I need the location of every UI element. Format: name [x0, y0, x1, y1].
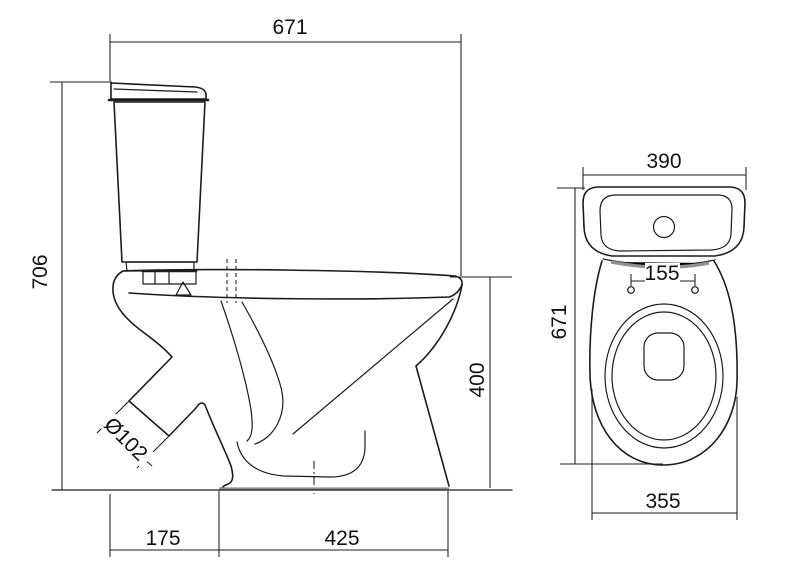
- dimension-value-706: 706: [29, 254, 52, 289]
- seat-ring-outer: [605, 304, 723, 448]
- seat-ring-inner: [612, 312, 716, 440]
- cistern-lid-inner-line: [114, 89, 197, 92]
- toilet-dimension-drawing: 671 706 400 Ø102 175 425: [0, 0, 789, 585]
- seat-bolt-centerlines: [227, 259, 236, 303]
- cistern-body-outline: [114, 102, 205, 262]
- hinge-hole-right: [692, 287, 699, 294]
- top-view: 390 155 671 355: [548, 150, 746, 520]
- dimension-value-155: 155: [644, 262, 679, 285]
- trapway-left-curve: [221, 301, 252, 441]
- seat-hinge-block: [143, 271, 196, 284]
- dimension-lines-671: [110, 34, 461, 276]
- dimension-value-400: 400: [466, 362, 489, 397]
- trapway-right-curve: [242, 302, 283, 444]
- dimension-cistern-width: 390: [583, 150, 746, 190]
- dimension-overall-width: 671: [110, 16, 461, 276]
- dimension-value-425: 425: [324, 527, 359, 550]
- dimension-value-175: 175: [145, 527, 180, 550]
- dimension-value-671-top: 671: [548, 304, 571, 339]
- dimension-outlet-diameter: Ø102: [94, 401, 169, 468]
- dimension-lines-671-top: [557, 188, 663, 464]
- dimension-value-390: 390: [646, 150, 681, 173]
- bowl-front-outline: [416, 285, 462, 486]
- water-surface-outline: [644, 333, 684, 380]
- dimension-footprint: 175 425: [110, 491, 448, 557]
- dimension-value-671-side: 671: [272, 16, 307, 39]
- dimension-bowl-width: 355: [592, 389, 737, 520]
- side-view: 671 706 400 Ø102 175 425: [29, 16, 512, 557]
- hinge-hole-left: [628, 287, 635, 294]
- flush-button-icon: [654, 217, 675, 238]
- dimension-overall-depth: 671: [548, 188, 663, 464]
- dimension-bowl-height: 400: [450, 277, 512, 488]
- cistern-top-inner-outline: [600, 195, 732, 251]
- technical-drawing-canvas: 671 706 400 Ø102 175 425: [0, 0, 789, 585]
- cistern-top-outline: [583, 187, 745, 256]
- dimension-value-355: 355: [645, 490, 680, 513]
- bowl-rim-line: [129, 285, 462, 299]
- sump-interior-curve: [237, 431, 365, 477]
